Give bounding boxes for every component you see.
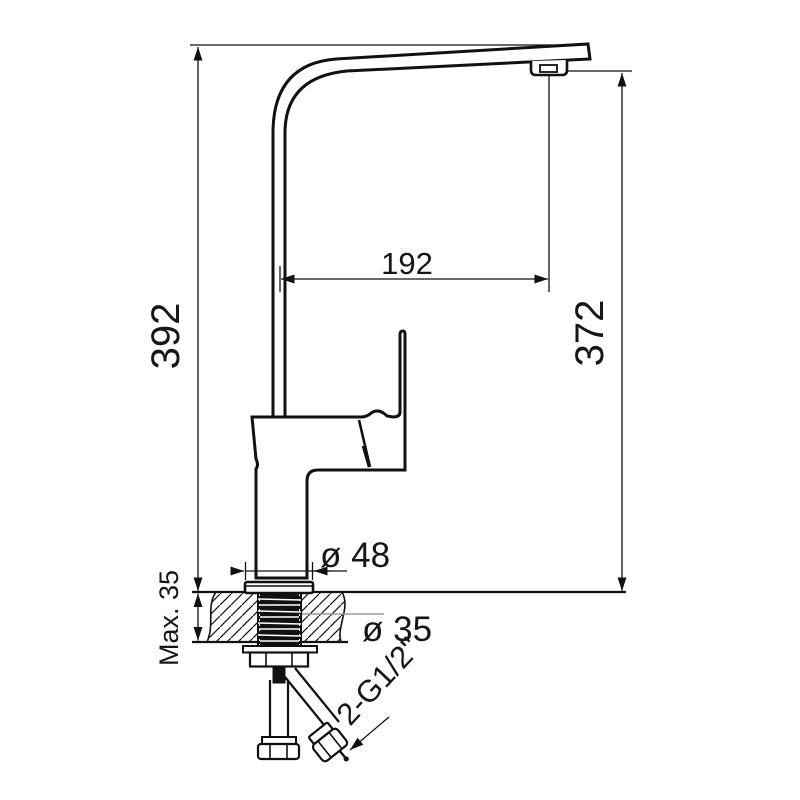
aerator-outlet [540, 65, 557, 72]
mounting-nut [250, 653, 308, 667]
label-base-diameter: ø 48 [320, 536, 390, 575]
vertical-pipe-nut [258, 744, 299, 759]
supply-pipe-diagonal-right [295, 668, 339, 722]
threaded-shank [257, 593, 302, 646]
label-spout-reach: 192 [381, 246, 433, 281]
labels: 392 372 192 ø 48 ø 35 Max. 35 2-G1/2" [144, 246, 612, 732]
fitting-stub [340, 751, 346, 758]
label-outlet-height: 372 [568, 300, 612, 367]
base-flange [245, 582, 313, 593]
faucet-technical-drawing: 392 372 192 ø 48 ø 35 Max. 35 2-G1/2" [0, 0, 800, 800]
label-deck-thickness: Max. 35 [154, 570, 184, 666]
faucet-body [245, 44, 590, 593]
spout-outline [273, 44, 590, 417]
supply-pipe-diagonal-left [285, 677, 329, 731]
diagonal-pipe-end-fitting [306, 720, 357, 773]
label-overall-height: 392 [144, 303, 188, 370]
threaded-stud [273, 667, 286, 684]
